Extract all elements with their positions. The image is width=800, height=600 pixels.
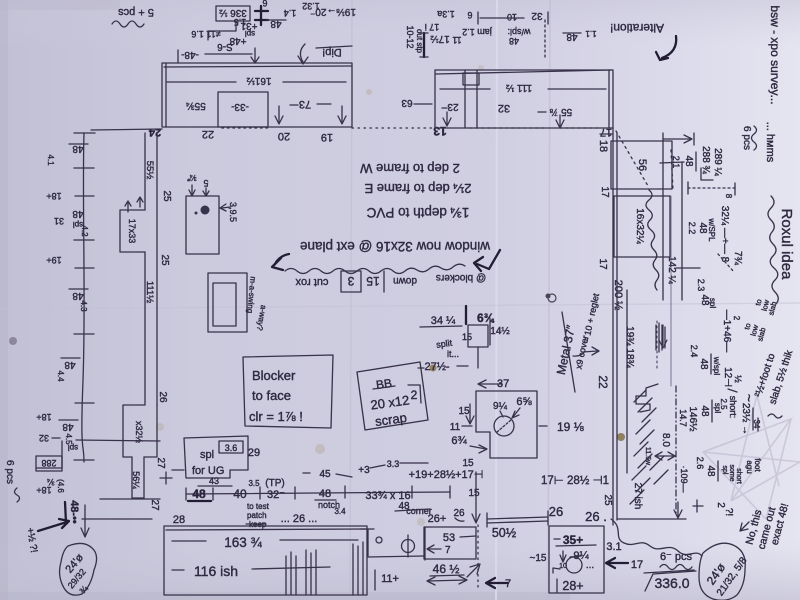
svg-text:32: 32 bbox=[39, 433, 49, 443]
svg-text:cut rox: cut rox bbox=[295, 276, 329, 288]
svg-text:6¾: 6¾ bbox=[477, 311, 495, 325]
svg-text:¾‴: ¾‴ bbox=[187, 173, 197, 182]
svg-text:15: 15 bbox=[462, 332, 472, 342]
svg-text:6: 6 bbox=[262, 0, 267, 8]
svg-text:25: 25 bbox=[161, 190, 172, 202]
svg-text:142 ¼: 142 ¼ bbox=[666, 256, 678, 284]
svg-text:55½: 55½ bbox=[144, 161, 155, 180]
svg-text:1¾ depth to PVC: 1¾ depth to PVC bbox=[366, 205, 469, 220]
svg-text:аgu: аgu bbox=[745, 460, 754, 473]
svg-text:24: 24 bbox=[148, 126, 161, 138]
svg-text:clr = 1⅞ !: clr = 1⅞ ! bbox=[249, 409, 303, 424]
svg-text:window now 32x16 @ ext plane: window now 32x16 @ ext plane bbox=[300, 239, 491, 254]
svg-text:7: 7 bbox=[445, 545, 451, 556]
svg-text:patch: patch bbox=[247, 511, 267, 520]
svg-text:31: 31 bbox=[54, 216, 64, 226]
svg-text:19 ⅛: 19 ⅛ bbox=[557, 420, 585, 434]
svg-text:Roxul idea: Roxul idea bbox=[778, 209, 795, 281]
svg-text:17: 17 bbox=[597, 258, 608, 270]
svg-text:26: 26 bbox=[157, 391, 168, 403]
svg-text:jam 1.2: jam 1.2 bbox=[462, 27, 493, 37]
svg-text:2 dep to frame W: 2 dep to frame W bbox=[359, 161, 459, 176]
svg-text:40: 40 bbox=[233, 487, 247, 501]
svg-text:19: 19 bbox=[321, 131, 333, 143]
svg-text:48: 48 bbox=[509, 36, 519, 46]
svg-text:48: 48 bbox=[699, 405, 710, 417]
svg-text:@ blockers: @ blockers bbox=[436, 272, 486, 283]
svg-text:288: 288 bbox=[41, 458, 56, 468]
svg-text:7¾: 7¾ bbox=[732, 251, 743, 266]
svg-text:(4.6: (4.6 bbox=[56, 479, 65, 493]
svg-text:3: 3 bbox=[347, 274, 354, 288]
svg-text:w/SPL: w/SPL bbox=[707, 217, 716, 242]
svg-text:48: 48 bbox=[62, 421, 74, 432]
svg-text:18+: 18+ bbox=[36, 412, 51, 422]
svg-text:2.6: 2.6 bbox=[695, 457, 705, 470]
svg-text:53: 53 bbox=[443, 532, 455, 544]
svg-text:5 + pcs: 5 + pcs bbox=[118, 6, 154, 18]
svg-text:34 ¼: 34 ¼ bbox=[431, 315, 456, 327]
svg-text:28+: 28+ bbox=[562, 579, 583, 593]
svg-text:45: 45 bbox=[319, 469, 331, 480]
svg-text:15: 15 bbox=[462, 458, 474, 469]
svg-text:-48-: -48- bbox=[181, 49, 199, 60]
svg-text:20: 20 bbox=[278, 130, 290, 142]
svg-text:19¾ 18¾: 19¾ 18¾ bbox=[624, 326, 635, 368]
svg-text:29: 29 bbox=[248, 447, 260, 459]
svg-text:1.1: 1.1 bbox=[585, 29, 597, 38]
svg-text:foot: foot bbox=[753, 458, 762, 472]
svg-text:43: 43 bbox=[209, 476, 219, 486]
svg-text:short:: short: bbox=[728, 396, 738, 419]
svg-text:8: 8 bbox=[724, 194, 733, 199]
svg-text:4.1: 4.1 bbox=[46, 154, 55, 166]
svg-text:32¼ —+— 8: 32¼ —+— 8 bbox=[719, 206, 731, 263]
svg-text:27: 27 bbox=[155, 457, 166, 469]
svg-text:15: 15 bbox=[458, 406, 470, 417]
svg-text:63: 63 bbox=[401, 97, 413, 108]
svg-text:16x32¼: 16x32¼ bbox=[634, 208, 646, 244]
svg-text:2.1: 2.1 bbox=[671, 156, 681, 169]
svg-text:... 26 ...: ... 26 ... bbox=[281, 513, 318, 525]
svg-text:161½: 161½ bbox=[246, 75, 272, 86]
svg-text:spl: spl bbox=[68, 443, 78, 452]
svg-text:116 ish: 116 ish bbox=[194, 563, 238, 579]
svg-text:3.5: 3.5 bbox=[248, 479, 260, 488]
svg-text:4.2: 4.2 bbox=[80, 225, 89, 237]
svg-text:11: 11 bbox=[450, 422, 461, 433]
svg-text:1.4: 1.4 bbox=[284, 8, 297, 18]
svg-text:w/spl:: w/spl: bbox=[507, 27, 531, 37]
svg-text:to face: to face bbox=[252, 388, 291, 403]
svg-text:48: 48 bbox=[698, 358, 709, 370]
svg-text:19+: 19+ bbox=[46, 255, 61, 265]
svg-text:19⅛→20⁻: 19⅛→20⁻ bbox=[310, 6, 356, 17]
svg-text:26 .: 26 . bbox=[585, 509, 607, 524]
svg-text:3.3: 3.3 bbox=[387, 459, 400, 469]
svg-text:·109—: ·109— bbox=[679, 465, 689, 492]
svg-text:56¼: 56¼ bbox=[131, 471, 141, 489]
svg-text:7: 7 bbox=[505, 578, 511, 590]
svg-text:32⁻: 32⁻ bbox=[267, 489, 285, 501]
svg-text:23: 23 bbox=[447, 101, 459, 112]
svg-text:3.4: 3.4 bbox=[334, 507, 346, 516]
svg-text:25: 25 bbox=[159, 254, 170, 266]
svg-text:½: ½ bbox=[733, 375, 743, 383]
svg-text:48: 48 bbox=[319, 488, 331, 500]
svg-text:32: 32 bbox=[531, 10, 543, 21]
svg-text:48: 48 bbox=[683, 155, 694, 167]
svg-text:289 ¼: 289 ¼ bbox=[712, 148, 724, 176]
svg-text:6⅝: 6⅝ bbox=[516, 396, 532, 408]
svg-text:2¼ dep to frame E: 2¼ dep to frame E bbox=[364, 181, 471, 196]
svg-text:short: short bbox=[735, 468, 742, 484]
svg-text:-33-: -33- bbox=[231, 101, 249, 112]
svg-text:14.7: 14.7 bbox=[678, 409, 688, 427]
svg-text:some: some bbox=[728, 464, 735, 481]
svg-text:14½: 14½ bbox=[490, 326, 510, 337]
svg-text:17: 17 bbox=[631, 559, 643, 571]
svg-text:111 ½: 111 ½ bbox=[505, 82, 532, 93]
svg-text:11: 11 bbox=[452, 35, 461, 45]
svg-text:50½: 50½ bbox=[492, 526, 517, 540]
svg-text:Alteration!: Alteration! bbox=[610, 21, 664, 35]
svg-text:...: ... bbox=[586, 560, 594, 571]
svg-text:down: down bbox=[393, 275, 417, 286]
svg-text:17⊢ 28½ ⊣1: 17⊢ 28½ ⊣1 bbox=[541, 475, 609, 487]
svg-text:46 ½: 46 ½ bbox=[433, 562, 460, 576]
svg-text:27 ish: 27 ish bbox=[632, 483, 643, 510]
svg-text:18: 18 bbox=[597, 140, 609, 152]
svg-text:~15: ~15 bbox=[530, 553, 547, 564]
svg-text:?!: ?! bbox=[723, 508, 734, 516]
svg-text:22: 22 bbox=[596, 375, 610, 389]
svg-text:3,9.5: 3,9.5 bbox=[228, 202, 238, 222]
svg-text:111½: 111½ bbox=[144, 281, 155, 303]
svg-text:23½ →: 23½ → bbox=[740, 403, 751, 435]
svg-text:6 pcs: 6 pcs bbox=[4, 460, 15, 484]
svg-text:(TP): (TP) bbox=[265, 478, 284, 489]
svg-text:11.5w: 11.5w bbox=[644, 447, 651, 466]
svg-text:37: 37 bbox=[497, 378, 509, 390]
svg-text:... hмms: ... hмms bbox=[764, 122, 776, 163]
svg-text:3.6: 3.6 bbox=[225, 443, 238, 453]
svg-text:15: 15 bbox=[366, 274, 380, 288]
svg-text:17: 17 bbox=[599, 186, 610, 198]
svg-text:336 ½: 336 ½ bbox=[218, 7, 246, 18]
svg-text:27½-: 27½- bbox=[424, 361, 449, 373]
svg-text:163 ¾: 163 ¾ bbox=[224, 535, 262, 550]
svg-text:200 ½: 200 ½ bbox=[612, 280, 624, 311]
svg-text:w/spl: w/spl bbox=[712, 356, 721, 375]
svg-text:4.3: 4.3 bbox=[79, 300, 88, 312]
svg-text:18+: 18+ bbox=[36, 485, 51, 495]
svg-text:26+: 26+ bbox=[428, 513, 447, 525]
svg-text:S-6: S-6 bbox=[217, 41, 233, 52]
svg-text:15: 15 bbox=[468, 488, 480, 499]
svg-text:—1+46—: —1+46— bbox=[721, 310, 732, 353]
svg-text:9¼: 9¼ bbox=[493, 400, 508, 412]
svg-text:BB: BB bbox=[375, 376, 393, 392]
svg-text:4.4: 4.4 bbox=[56, 370, 65, 382]
svg-text:10: 10 bbox=[507, 12, 517, 22]
svg-text:spl: spl bbox=[721, 466, 728, 475]
svg-text:2: 2 bbox=[411, 388, 418, 402]
svg-text:17x33: 17x33 bbox=[127, 219, 137, 244]
svg-text:18+: 18+ bbox=[46, 191, 61, 201]
svg-text:17 i: 17 i bbox=[425, 22, 440, 32]
svg-text:25: 25 bbox=[602, 494, 613, 506]
svg-text:27: 27 bbox=[149, 499, 160, 511]
svg-text:48: 48 bbox=[705, 465, 716, 477]
svg-text:12⊣: 12⊣ bbox=[722, 367, 733, 387]
svg-text:+3: +3 bbox=[358, 465, 370, 476]
svg-text:32: 32 bbox=[498, 102, 510, 114]
svg-text:48: 48 bbox=[72, 290, 84, 301]
svg-text:10-12: 10-12 bbox=[405, 25, 415, 48]
svg-text:34: 34 bbox=[752, 420, 761, 429]
svg-text:146½: 146½ bbox=[687, 406, 698, 432]
svg-text:spl: spl bbox=[200, 449, 214, 461]
svg-text:55¾: 55¾ bbox=[186, 100, 206, 111]
svg-text:22: 22 bbox=[202, 128, 214, 140]
svg-text:spl: spl bbox=[708, 298, 717, 308]
svg-text:73: 73 bbox=[299, 98, 311, 110]
svg-text:x32½: x32½ bbox=[134, 421, 144, 444]
svg-text:8.0: 8.0 bbox=[660, 433, 671, 447]
svg-text:to test: to test bbox=[247, 502, 270, 511]
svg-text:48: 48 bbox=[697, 222, 708, 234]
svg-text:48: 48 bbox=[64, 359, 76, 370]
svg-text:3.1: 3.1 bbox=[606, 541, 621, 553]
svg-text:bsw - xpo survey...: bsw - xpo survey... bbox=[768, 5, 782, 104]
svg-text:1.3a: 1.3a bbox=[437, 9, 455, 19]
svg-text:6⁻ pcs: 6⁻ pcs bbox=[660, 551, 693, 563]
svg-text:2.2: 2.2 bbox=[687, 222, 697, 235]
svg-text:28: 28 bbox=[173, 514, 185, 526]
svg-text:5: 5 bbox=[203, 178, 208, 188]
svg-text:2.4: 2.4 bbox=[689, 345, 699, 358]
svg-text:26: 26 bbox=[453, 508, 465, 519]
svg-text:Blocker: Blocker bbox=[252, 368, 296, 383]
svg-text:48: 48 bbox=[192, 487, 206, 501]
svg-text:11+: 11+ bbox=[381, 573, 399, 585]
svg-text:48: 48 bbox=[72, 208, 84, 219]
svg-text:336.0: 336.0 bbox=[654, 575, 689, 591]
svg-text:17½: 17½ bbox=[430, 33, 450, 44]
svg-text:26: 26 bbox=[549, 504, 563, 519]
svg-text:6: 6 bbox=[467, 10, 472, 20]
svg-text:2.3: 2.3 bbox=[696, 279, 706, 292]
svg-text:2: 2 bbox=[732, 316, 741, 321]
svg-text:it...: it... bbox=[447, 349, 459, 359]
svg-text:55 ⅞: 55 ⅞ bbox=[549, 106, 572, 117]
svg-text:+19+28½+17⊣: +19+28½+17⊣ bbox=[409, 469, 484, 481]
svg-text:6¾: 6¾ bbox=[451, 435, 467, 447]
svg-text:6 pcs: 6 pcs bbox=[741, 126, 752, 150]
svg-text:2.5: 2.5 bbox=[719, 398, 728, 410]
